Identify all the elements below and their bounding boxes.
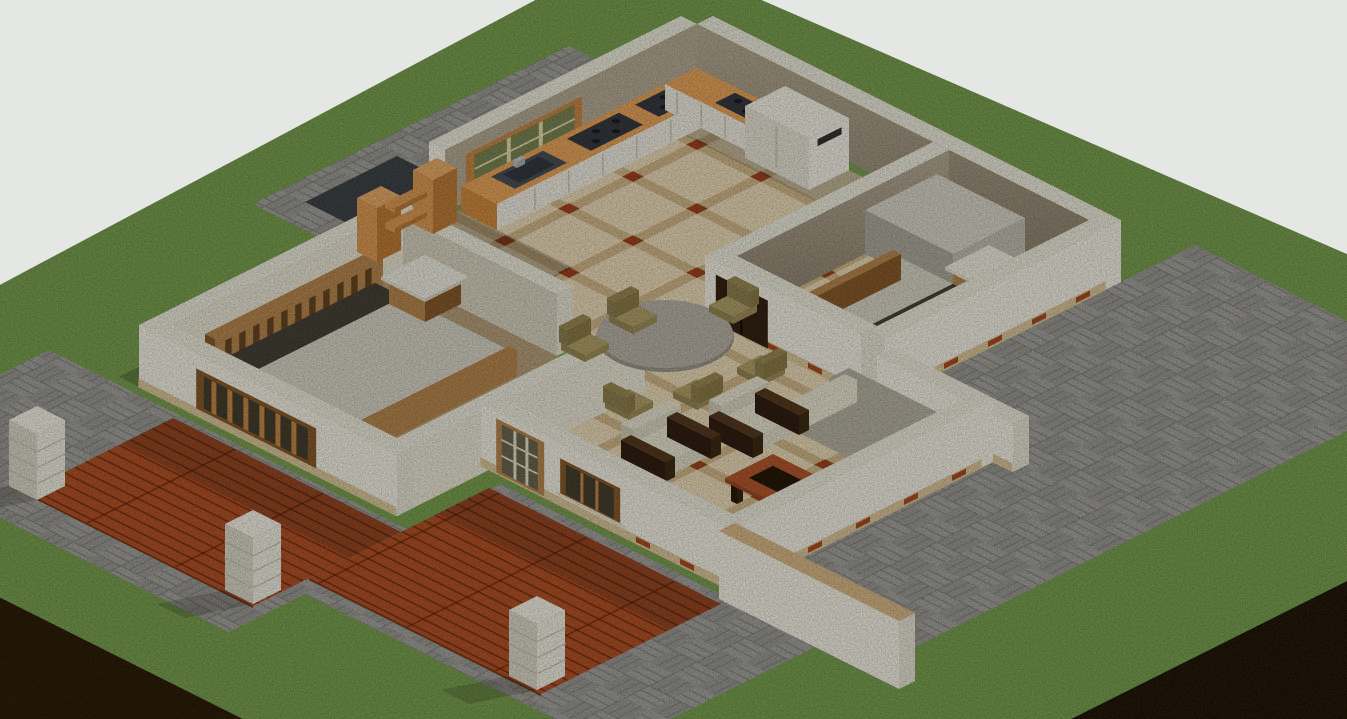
cabinet-seam bbox=[636, 136, 638, 159]
pillar bbox=[225, 510, 281, 604]
burner bbox=[612, 119, 620, 123]
pillar bbox=[9, 406, 65, 500]
bedroom-window-slat bbox=[227, 389, 232, 424]
burner bbox=[592, 139, 600, 143]
render-viewport: Isometric 3D rendered cutaway floor plan… bbox=[0, 0, 1347, 719]
cabinet-seam bbox=[602, 153, 604, 176]
burner bbox=[612, 129, 620, 133]
fridge-door-seam bbox=[775, 126, 777, 169]
front-window-muntin bbox=[580, 472, 583, 504]
cabinet-seam bbox=[670, 119, 672, 142]
bedroom-window-slat bbox=[275, 413, 280, 448]
french-window-muntin bbox=[513, 431, 516, 481]
bedroom-window-slat bbox=[243, 397, 248, 432]
front-window-muntin bbox=[595, 480, 598, 512]
cabinet-seam bbox=[568, 170, 570, 193]
bedroom-window-slat bbox=[259, 405, 264, 440]
cabinet-seam bbox=[700, 104, 702, 127]
cabinet-seam bbox=[676, 92, 678, 115]
isometric-house-render: Isometric 3D rendered cutaway floor plan… bbox=[0, 0, 1347, 719]
burner bbox=[592, 129, 600, 133]
bedroom-window-slat bbox=[211, 381, 216, 416]
burner bbox=[734, 99, 742, 103]
cabinet-seam bbox=[534, 187, 536, 210]
pillar bbox=[509, 596, 565, 690]
french-window-muntin bbox=[525, 437, 528, 487]
cabinet-seam bbox=[724, 116, 726, 139]
bedroom-window-slat bbox=[291, 421, 296, 456]
